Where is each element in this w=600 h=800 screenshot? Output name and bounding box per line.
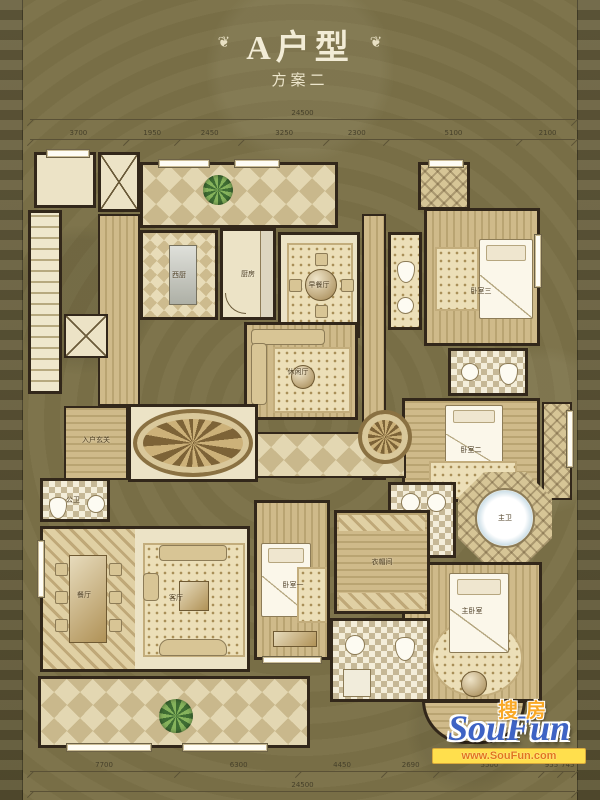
window xyxy=(46,149,90,158)
dim-bottom-total: 24500 xyxy=(30,780,575,792)
kitchen-counter xyxy=(260,231,273,317)
window xyxy=(182,743,268,752)
window xyxy=(428,159,464,168)
chair xyxy=(109,563,122,576)
window xyxy=(534,234,542,288)
elevator-shaft xyxy=(98,152,140,212)
round-medallion xyxy=(358,410,412,464)
bath-middle xyxy=(330,618,430,702)
chair xyxy=(55,563,68,576)
chair xyxy=(315,305,328,318)
room-label-master-bath: 主卫 xyxy=(498,513,512,523)
bedroom3-rug xyxy=(435,247,479,311)
chair xyxy=(315,253,328,266)
stairwell xyxy=(28,210,62,394)
room-label-foyer: 入户玄关 xyxy=(82,435,110,445)
watermark-chinese: 搜房 xyxy=(458,694,594,723)
dim-top-total-row: 24500 xyxy=(30,108,575,120)
dim-bottom-total-row: 24500 xyxy=(30,780,575,792)
soufun-watermark: 搜房 SouFun www.SouFun.com xyxy=(424,694,594,764)
living-dining-room xyxy=(40,526,250,672)
left-ornament-band xyxy=(0,0,23,800)
floor-plan: 西厨 厨房 早餐厅 休闲厅 入户玄关 公卫 餐厅 客厅 卧室一 衣帽间 卧室二 … xyxy=(26,148,574,756)
page-title: A户型 xyxy=(246,20,354,69)
balcony-top-right xyxy=(418,162,470,210)
dim-segment: 2450 xyxy=(178,128,242,140)
title-block: ❦A户型❦ 方案二 xyxy=(0,20,600,90)
window xyxy=(158,159,210,168)
bed xyxy=(445,405,503,469)
coffee-table xyxy=(179,581,209,611)
closet-rack xyxy=(339,515,425,531)
chair xyxy=(55,619,68,632)
grand-foyer xyxy=(128,404,258,482)
dim-top-total: 24500 xyxy=(30,108,575,120)
room-label-closet: 衣帽间 xyxy=(372,557,393,567)
toilet-icon xyxy=(49,497,67,519)
dim-segment: 1950 xyxy=(127,128,178,140)
desk xyxy=(273,631,317,647)
bedroom1-rug xyxy=(297,567,327,623)
bed xyxy=(479,239,533,319)
window xyxy=(37,540,45,598)
entry-lobby xyxy=(140,162,338,228)
left-flourish-icon: ❦ xyxy=(218,33,231,51)
room-label-master: 主卧室 xyxy=(462,606,483,616)
room-label-leisure: 休闲厅 xyxy=(288,367,309,377)
right-ornament-band xyxy=(577,0,600,800)
room-label-kitchen: 厨房 xyxy=(241,269,255,279)
dim-top-segments-row: 3700 1950 2450 3250 2300 5100 2100 xyxy=(30,128,575,140)
door-arc xyxy=(225,293,246,314)
entry-corridor xyxy=(98,214,140,406)
dim-segment: 5100 xyxy=(387,128,520,140)
chair xyxy=(341,279,354,292)
dim-segment: 4450 xyxy=(299,760,385,772)
room-label-bed2: 卧室二 xyxy=(461,445,482,455)
sofa xyxy=(159,545,227,561)
plant-icon xyxy=(203,175,233,205)
toilet-icon xyxy=(397,261,415,283)
window xyxy=(566,410,574,468)
chair xyxy=(109,591,122,604)
window xyxy=(234,159,280,168)
elevator-shaft-2 xyxy=(64,314,108,358)
basin-icon xyxy=(87,495,105,513)
terrace xyxy=(38,676,310,748)
window xyxy=(262,656,322,664)
page-subtitle: 方案二 xyxy=(0,69,600,90)
room-label-breakfast: 早餐厅 xyxy=(309,280,330,290)
bedroom-3 xyxy=(424,208,540,346)
sofa xyxy=(159,639,227,656)
right-flourish-icon: ❦ xyxy=(370,33,383,51)
room-label-dining: 餐厅 xyxy=(77,590,91,600)
plant-icon xyxy=(159,699,193,733)
shower-icon xyxy=(343,669,371,697)
chair xyxy=(289,279,302,292)
balcony-top-left xyxy=(34,152,96,208)
ellipse-medallion xyxy=(133,409,253,477)
toilet-icon xyxy=(499,363,518,385)
dim-segment: 7700 xyxy=(30,760,178,772)
room-label-living: 客厅 xyxy=(169,593,183,603)
dim-segment: 6300 xyxy=(178,760,299,772)
room-label-west-kitchen: 西厨 xyxy=(172,270,186,280)
room-label-powder: 公卫 xyxy=(66,495,80,505)
basin-icon xyxy=(461,363,479,381)
room-label-bed3: 卧室三 xyxy=(471,286,492,296)
watermark-url: www.SouFun.com xyxy=(432,748,586,764)
room-label-bed1: 卧室一 xyxy=(283,580,304,590)
dim-segment: 2300 xyxy=(327,128,387,140)
dim-segment: 2100 xyxy=(520,128,575,140)
chair xyxy=(109,619,122,632)
chair xyxy=(55,591,68,604)
basin-icon xyxy=(345,635,365,655)
dim-segment: 3250 xyxy=(242,128,327,140)
window xyxy=(66,743,152,752)
bath-3 xyxy=(388,232,422,330)
toilet-icon xyxy=(395,637,415,661)
basin-icon xyxy=(397,297,414,314)
armchair xyxy=(143,573,159,601)
sofa xyxy=(251,343,267,405)
dim-segment: 3700 xyxy=(30,128,127,140)
floorplan-page: { "title": { "main": "A户型", "sub": "方案二"… xyxy=(0,0,600,800)
bath-3b xyxy=(448,348,528,396)
closet-rack xyxy=(339,593,425,609)
